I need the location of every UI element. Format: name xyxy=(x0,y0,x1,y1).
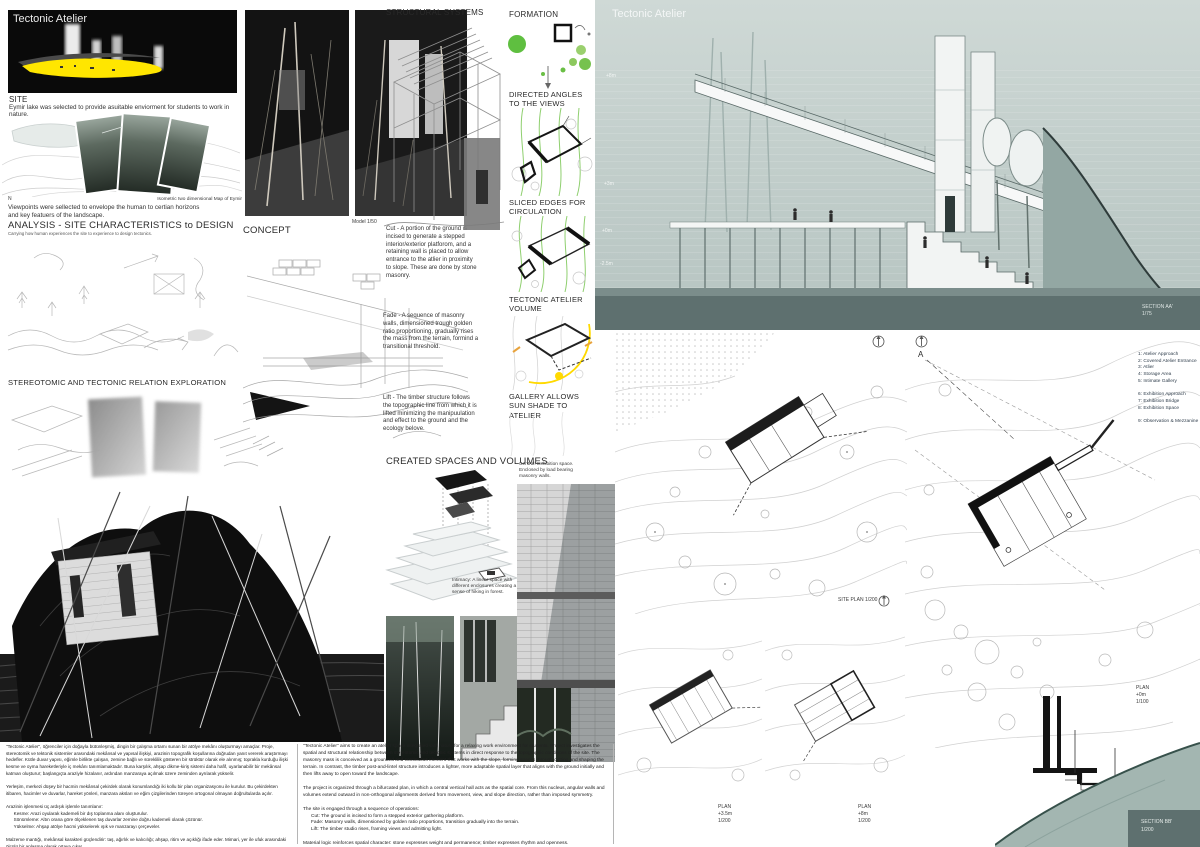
structural-heading: STRUCTURAL SYSTEMS xyxy=(386,8,484,17)
structural-drawing xyxy=(380,20,508,238)
concept-lift-text: Lift - The timber structure follows the … xyxy=(383,395,479,434)
concept-fade-text: Fade - A sequence of masonry walls, dime… xyxy=(383,313,479,352)
level-marker-8m: +8m xyxy=(606,73,616,79)
section-aa-scale: 1/75 xyxy=(1142,311,1152,317)
hero-title: Tectonic Atelier xyxy=(13,13,87,25)
analysis-subheading: Carrying how human experiences the site … xyxy=(8,231,152,236)
footer-text-turkish: "Tectonic Atelier", öğrenciler için doğa… xyxy=(6,744,292,847)
hero-model-render xyxy=(0,476,390,742)
site-heading: SITE xyxy=(9,95,28,104)
north-arrow-icon xyxy=(872,335,885,348)
plan-8-label: PLAN +8m 1/200 xyxy=(858,804,871,824)
north-arrow-icon xyxy=(878,595,890,607)
section-bb-scale: 1/200 xyxy=(1141,827,1154,833)
model-caption: Model 1/50 xyxy=(352,219,377,225)
volume-diagram xyxy=(505,316,593,390)
footer-divider-1 xyxy=(297,744,298,844)
footer-divider-2 xyxy=(613,744,614,844)
section-marker-a: A xyxy=(918,350,924,359)
site-map-sketch xyxy=(2,113,242,197)
stereotomic-heading: STEREOTOMIC AND TECTONIC RELATION EXPLOR… xyxy=(8,378,226,387)
plan-legend: 1: Atelier Approach 2: Covered Atelier E… xyxy=(1138,352,1200,426)
plan-8-figure xyxy=(765,615,905,800)
map-caption: Isometric two dimensional Map of Eymir xyxy=(120,197,242,202)
plan-35-figure xyxy=(618,615,762,800)
sliced-diagram xyxy=(505,216,593,292)
formation-heading: FORMATION xyxy=(509,10,558,19)
hero-panel: Tectonic Atelier xyxy=(8,10,237,93)
masonry-photo xyxy=(517,484,615,762)
formation-dots-diagram xyxy=(505,20,593,90)
section-aa-drawing xyxy=(595,0,1200,330)
formation-step-volume: TECTONIC ATELIER VOLUME xyxy=(509,295,595,314)
viewpoints-note: Viewpoints were sellected to envelope th… xyxy=(8,204,258,220)
footer-text-english: "Tectonic Atelier" aims to create an ate… xyxy=(303,744,609,847)
formation-step-views: DIRECTED ANGLES TO THE VIEWS xyxy=(509,90,595,109)
forest-photo xyxy=(384,614,456,762)
plan-35-label: PLAN +3.5m 1/200 xyxy=(718,804,732,824)
presentation-board: Tectonic Atelier SITE Eymir lake was sel… xyxy=(0,0,1200,847)
north-label: N xyxy=(8,196,12,202)
level-marker-0m: +0m xyxy=(602,228,612,234)
formation-step-sliced: SLICED EDGES FOR CIRCULATION xyxy=(509,198,595,217)
section-aa-label: SECTION AA' xyxy=(1142,304,1173,310)
views-diagram xyxy=(505,108,593,196)
level-marker-minus25m: -2.5m xyxy=(600,261,613,267)
level-marker-3m: +3m xyxy=(604,181,614,187)
section-bb-label: SECTION BB' xyxy=(1141,819,1172,825)
site-plan-figure xyxy=(615,332,907,614)
analysis-sketches xyxy=(4,238,240,372)
gallery-contours xyxy=(505,412,593,456)
concept-heading: CONCEPT xyxy=(243,225,291,236)
site-map-figure xyxy=(2,113,242,197)
caption-central: Central: Exhibition space. Enclosed by l… xyxy=(519,462,614,481)
site-plan-label: SITE PLAN 1/200 xyxy=(838,597,877,603)
section-aa-title: Tectonic Atelier xyxy=(612,8,686,20)
model-photo-left xyxy=(243,8,351,218)
section-bb-label-band: SECTION BB' 1/200 xyxy=(1128,810,1200,847)
section-aa-panel: Tectonic Atelier +8m +3m +0m -2.5m SECTI… xyxy=(595,0,1200,330)
analysis-heading: ANALYSIS - SITE CHARACTERISTICS to DESIG… xyxy=(8,220,234,231)
